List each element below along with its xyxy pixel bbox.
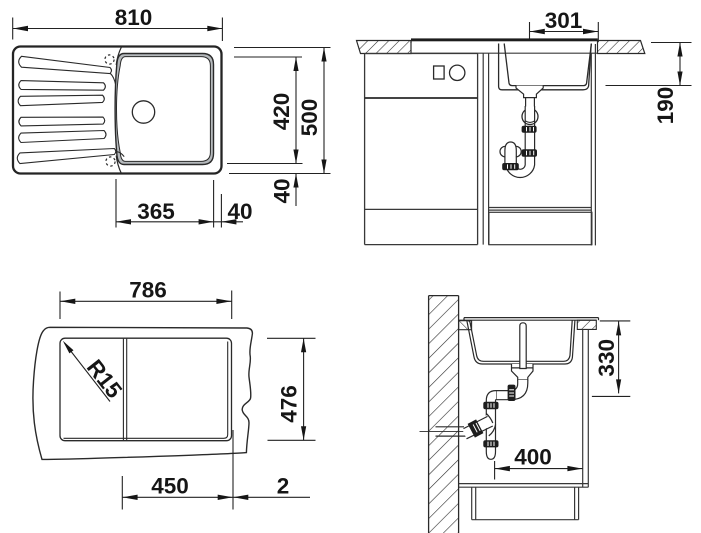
svg-text:301: 301 bbox=[545, 8, 583, 33]
svg-text:190: 190 bbox=[653, 87, 678, 125]
svg-text:40: 40 bbox=[270, 178, 295, 203]
svg-text:40: 40 bbox=[227, 199, 252, 224]
svg-text:2: 2 bbox=[277, 474, 290, 499]
svg-text:500: 500 bbox=[297, 99, 322, 137]
svg-text:786: 786 bbox=[129, 278, 167, 303]
svg-text:330: 330 bbox=[594, 339, 619, 377]
svg-text:450: 450 bbox=[151, 474, 189, 499]
svg-text:476: 476 bbox=[277, 385, 302, 423]
svg-text:365: 365 bbox=[137, 199, 175, 224]
svg-text:420: 420 bbox=[269, 93, 294, 131]
svg-text:400: 400 bbox=[514, 445, 552, 470]
svg-text:810: 810 bbox=[115, 5, 153, 30]
